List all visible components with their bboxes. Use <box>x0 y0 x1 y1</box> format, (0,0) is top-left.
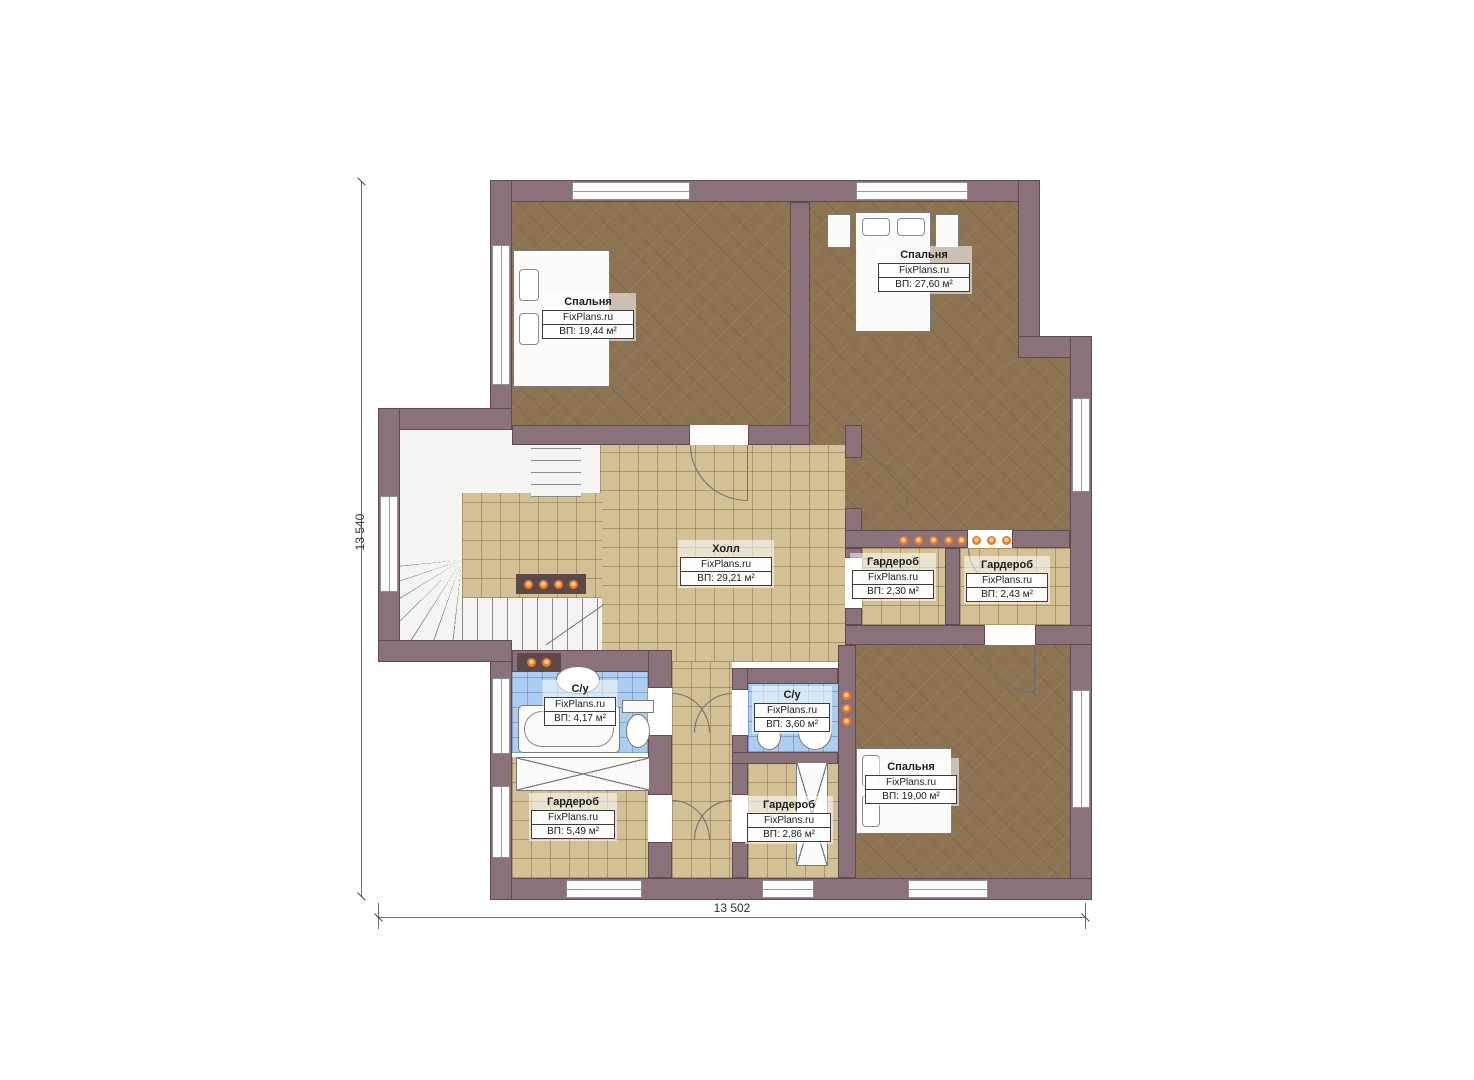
radiator-dot <box>842 704 851 713</box>
room-label-bedroom-tl: Спальня FixPlans.ru ВП: 19,44 м² <box>540 293 636 341</box>
watermark: FixPlans.ru <box>545 698 615 712</box>
wall-wardrobe1-left-b <box>845 608 862 625</box>
window <box>908 880 988 898</box>
watermark: FixPlans.ru <box>853 571 933 585</box>
radiator-dot <box>527 658 536 667</box>
window <box>492 786 510 858</box>
watermark: FixPlans.ru <box>748 814 830 828</box>
window <box>380 496 398 592</box>
radiator-dots <box>516 574 586 594</box>
floor-plan: Спальня FixPlans.ru ВП: 19,44 м² Спальня… <box>0 0 1474 1080</box>
radiator-dot <box>842 717 851 726</box>
watermark: FixPlans.ru <box>755 704 829 718</box>
wall-stairbay-bottom <box>378 640 512 662</box>
room-name: С/у <box>754 688 830 703</box>
radiator-dot <box>972 536 981 545</box>
radiator-dot <box>539 580 548 589</box>
wall-bathroom-left-right-c <box>648 842 672 878</box>
door-leaf <box>747 445 748 501</box>
radiator-dot <box>929 536 938 545</box>
radiator-dots <box>898 532 954 548</box>
radiator-dots <box>517 653 561 671</box>
room-name: Холл <box>680 542 772 557</box>
room-label-wardrobe-1: Гардероб FixPlans.ru ВП: 2,30 м² <box>850 553 936 601</box>
stairs-upper-flight <box>531 445 581 497</box>
wall-right-upper <box>1018 180 1040 350</box>
watermark: FixPlans.ru <box>543 311 633 325</box>
window <box>1072 690 1090 808</box>
radiator-dot <box>569 580 578 589</box>
radiator-dot <box>957 536 966 545</box>
window <box>492 678 510 754</box>
nightstand <box>827 214 851 248</box>
stairs-winder <box>400 560 462 650</box>
radiator-dot <box>524 580 533 589</box>
watermark: FixPlans.ru <box>532 811 614 825</box>
room-label-bath-left: С/у FixPlans.ru ВП: 4,17 м² <box>542 680 618 728</box>
room-name: Гардероб <box>852 555 934 570</box>
room-area: ВП: 19,00 м² <box>866 790 956 803</box>
nightstand <box>935 214 959 248</box>
window <box>856 182 968 200</box>
room-area: ВП: 2,43 м² <box>967 588 1047 601</box>
door-leaf <box>1034 645 1035 693</box>
pillow <box>519 313 539 345</box>
dimension-bottom-label: 13 502 <box>692 901 772 915</box>
window <box>762 880 814 898</box>
wall-hall-right-a <box>845 425 862 458</box>
window <box>572 182 690 200</box>
room-area: ВП: 2,86 м² <box>748 828 830 841</box>
room-area: ВП: 2,30 м² <box>853 585 933 598</box>
watermark: FixPlans.ru <box>866 776 956 790</box>
stairs-break-line <box>546 605 604 646</box>
room-label-wardrobe-bm: Гардероб FixPlans.ru ВП: 2,86 м² <box>745 796 833 844</box>
radiator-dot <box>944 536 953 545</box>
dimension-line-bottom <box>378 917 1085 918</box>
watermark: FixPlans.ru <box>681 558 771 572</box>
room-area: ВП: 27,60 м² <box>879 278 969 291</box>
wall-wardrobes-divider <box>945 548 960 625</box>
room-name: Гардероб <box>966 558 1048 573</box>
wall-bathroom-mid-left-a <box>732 668 748 690</box>
radiator-dots <box>956 532 1012 548</box>
room-label-bedroom-br: Спальня FixPlans.ru ВП: 19,00 м² <box>863 758 959 806</box>
wall-bathroom-left-right-a <box>648 650 672 688</box>
watermark: FixPlans.ru <box>967 574 1047 588</box>
window <box>1072 398 1090 492</box>
room-label-wardrobe-2: Гардероб FixPlans.ru ВП: 2,43 м² <box>964 556 1050 604</box>
toilet-tank <box>622 700 654 713</box>
room-name: Гардероб <box>747 798 831 813</box>
room-label-bath-mid: С/у FixPlans.ru ВП: 3,60 м² <box>752 686 832 734</box>
window <box>492 245 510 385</box>
wall-bathroom-mid-left-b <box>732 735 748 795</box>
watermark: FixPlans.ru <box>879 264 969 278</box>
pillow <box>897 218 925 236</box>
wall-wardrobes-bottom-b <box>1035 625 1092 645</box>
wall-wardrobes-bottom-a <box>845 625 985 645</box>
wall-bathroom-mid-left-c <box>732 842 748 878</box>
radiator-dot <box>554 580 563 589</box>
room-name: Гардероб <box>531 795 615 810</box>
room-name: Спальня <box>542 295 634 310</box>
radiator-dots <box>836 688 856 728</box>
wall-bedroom-tl-bottom-a <box>512 425 690 445</box>
room-area: ВП: 5,49 м² <box>532 825 614 838</box>
room-label-wardrobe-bl: Гардероб FixPlans.ru ВП: 5,49 м² <box>529 793 617 841</box>
room-name: С/у <box>544 682 616 697</box>
room-area: ВП: 3,60 м² <box>755 718 829 731</box>
pillow <box>862 218 890 236</box>
pillow <box>519 269 539 301</box>
toilet-symbol <box>626 714 650 748</box>
wall-bedroom-br-left <box>838 645 856 878</box>
radiator-dot <box>899 536 908 545</box>
room-label-bedroom-tr: Спальня FixPlans.ru ВП: 27,60 м² <box>876 246 972 294</box>
room-area: ВП: 4,17 м² <box>545 712 615 725</box>
radiator-dot <box>542 658 551 667</box>
room-area: ВП: 19,44 м² <box>543 325 633 338</box>
wall-bedroom-tr-bottom-b <box>1012 530 1070 548</box>
radiator-dot <box>1002 536 1011 545</box>
radiator-dot <box>914 536 923 545</box>
dimension-left-label: 13 540 <box>353 502 367 562</box>
radiator-dot <box>987 536 996 545</box>
room-name: Спальня <box>878 248 970 263</box>
window <box>566 880 642 898</box>
room-label-hall: Холл FixPlans.ru ВП: 29,21 м² <box>678 540 774 588</box>
room-name: Спальня <box>865 760 957 775</box>
room-area: ВП: 29,21 м² <box>681 572 771 585</box>
wardrobe-crossed-box <box>516 757 650 791</box>
wall-bedrooms-divider <box>790 202 810 428</box>
wall-bathroom-left-right-b <box>648 735 672 795</box>
radiator-dot <box>842 691 851 700</box>
wall-bedroom-tl-bottom-b <box>748 425 810 445</box>
